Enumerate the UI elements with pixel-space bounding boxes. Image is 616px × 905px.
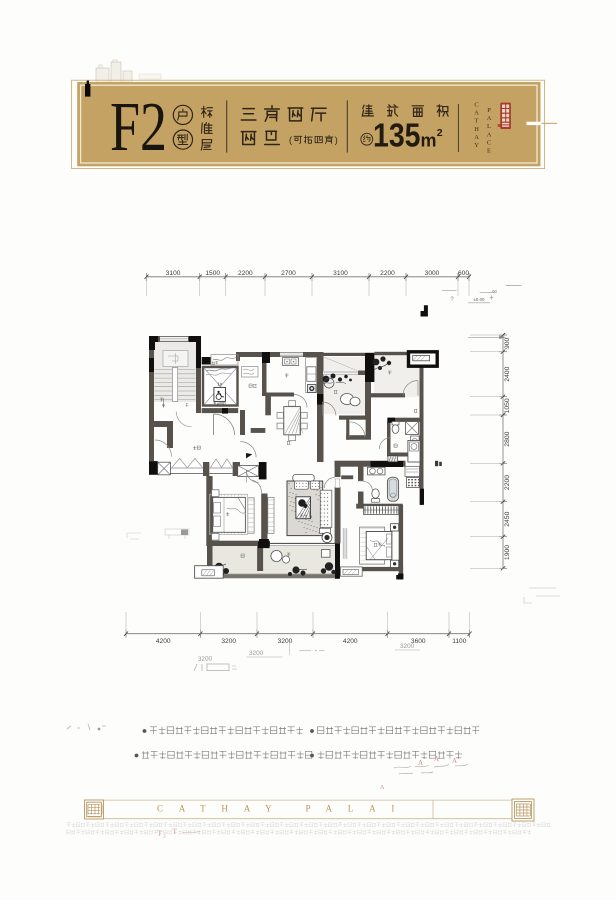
svg-text:A: A [434,755,439,763]
svg-text:135: 135 [373,117,421,154]
svg-text:2200: 2200 [238,270,253,277]
svg-text:A: A [380,785,385,791]
svg-text:3100: 3100 [166,270,181,277]
svg-text:H: H [474,126,479,133]
svg-text:2200: 2200 [504,475,511,490]
svg-text:1900: 1900 [504,545,511,560]
svg-text:2: 2 [163,834,166,840]
svg-text:CATHAY PALAI: CATHAY PALAI [157,804,410,814]
svg-text:C: C [474,102,478,109]
svg-text:F2: F2 [110,89,167,166]
svg-text:3200: 3200 [400,643,415,650]
svg-text:T: T [172,827,177,836]
svg-text:P: P [487,107,491,114]
svg-text:2400: 2400 [504,366,511,381]
svg-text:F: F [185,403,188,409]
svg-text:A: A [418,759,423,767]
svg-text:3200: 3200 [221,638,236,645]
svg-text:A: A [474,110,479,117]
svg-text:1#: 1# [217,381,222,386]
svg-text:2800: 2800 [504,431,511,446]
svg-text:600: 600 [458,270,469,277]
svg-text:900: 900 [504,337,511,349]
svg-text:3200: 3200 [198,655,213,663]
svg-text:3200: 3200 [249,650,264,657]
svg-text:±0.00: ±0.00 [474,297,486,302]
svg-text:4200: 4200 [343,638,358,645]
svg-text:2200: 2200 [380,270,395,277]
svg-text:C: C [487,139,491,146]
svg-text:A: A [487,115,492,122]
svg-text:1050: 1050 [504,398,511,413]
svg-text:(: ( [289,135,292,145]
svg-text:A: A [487,131,492,138]
svg-text:2700: 2700 [281,270,296,277]
svg-text:4200: 4200 [156,638,171,645]
svg-text:00: 00 [492,289,497,294]
svg-text:3200: 3200 [278,638,293,645]
svg-text:2450: 2450 [504,511,511,526]
svg-text:): ) [335,135,338,145]
svg-text:1100: 1100 [452,638,467,645]
svg-text:m: m [421,131,437,151]
svg-text:E: E [487,148,491,155]
svg-text:3100: 3100 [333,270,348,277]
svg-text:T: T [157,829,162,838]
svg-text:L: L [487,123,491,130]
svg-text:3000: 3000 [425,270,440,277]
svg-text:T: T [475,118,479,125]
svg-text:1500: 1500 [205,270,220,277]
svg-text:A: A [452,757,457,765]
svg-text:2: 2 [437,127,443,139]
svg-text:Y: Y [474,142,479,149]
svg-text:A: A [474,134,479,141]
